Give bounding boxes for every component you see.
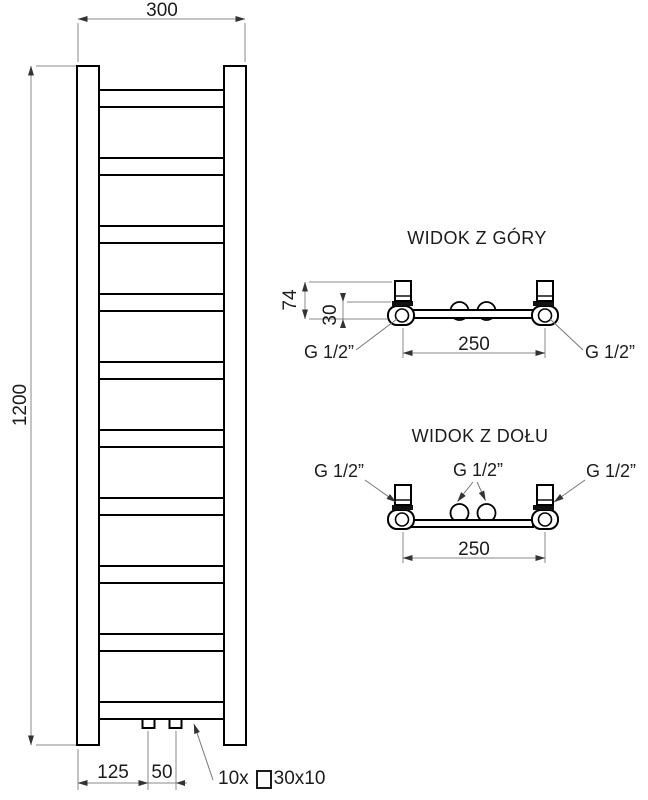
front-view-radiator (77, 66, 246, 745)
wall-bracket-right (537, 281, 553, 301)
dim-spacing-250-bottom: 250 (454, 539, 494, 561)
wall-bracket-left (395, 485, 411, 505)
top-tube (412, 310, 533, 318)
rung-size: 30x10 (274, 768, 326, 790)
connection-stubs (143, 719, 182, 728)
dim-spacing-250-top: 250 (454, 334, 494, 356)
dim-width-300: 300 (78, 0, 246, 22)
rung-count: 10x (218, 768, 249, 790)
wall-bracket-right (537, 485, 553, 505)
front-view-dimensions (31, 19, 245, 790)
dim-stub-spacing-50: 50 (148, 762, 176, 784)
bottom-view-title: WIDOK Z DOŁU (400, 426, 560, 447)
dim-height-1200: 1200 (0, 381, 43, 429)
top-view-geometry (388, 281, 558, 325)
drawing-geometry (0, 0, 648, 800)
thread-label-top-left: G 1/2” (294, 342, 354, 363)
bottom-tube (412, 520, 533, 527)
connection-right (539, 513, 552, 526)
connection-left (396, 513, 409, 526)
connection-right (539, 309, 552, 322)
dim-offset-125: 125 (78, 762, 148, 784)
thread-label-bottom-center: G 1/2” (446, 460, 510, 481)
thread-label-bottom-left: G 1/2” (304, 461, 364, 482)
square-profile-icon (256, 770, 272, 789)
technical-drawing: 300 1200 125 50 10x 30x10 WIDOK Z GÓRY 7… (0, 0, 648, 800)
top-view-title: WIDOK Z GÓRY (397, 228, 557, 249)
connection-left (396, 309, 409, 322)
thread-label-top-right: G 1/2” (585, 342, 645, 363)
dim-bracket-depth-74: 74 (272, 276, 310, 324)
thread-label-bottom-right: G 1/2” (586, 461, 646, 482)
radiator-rungs (98, 90, 225, 719)
rung-profile-label: 10x 30x10 (218, 768, 325, 790)
wall-bracket-left (395, 281, 411, 301)
dim-pipe-offset-30: 30 (312, 291, 350, 339)
bottom-view-geometry (388, 485, 558, 529)
